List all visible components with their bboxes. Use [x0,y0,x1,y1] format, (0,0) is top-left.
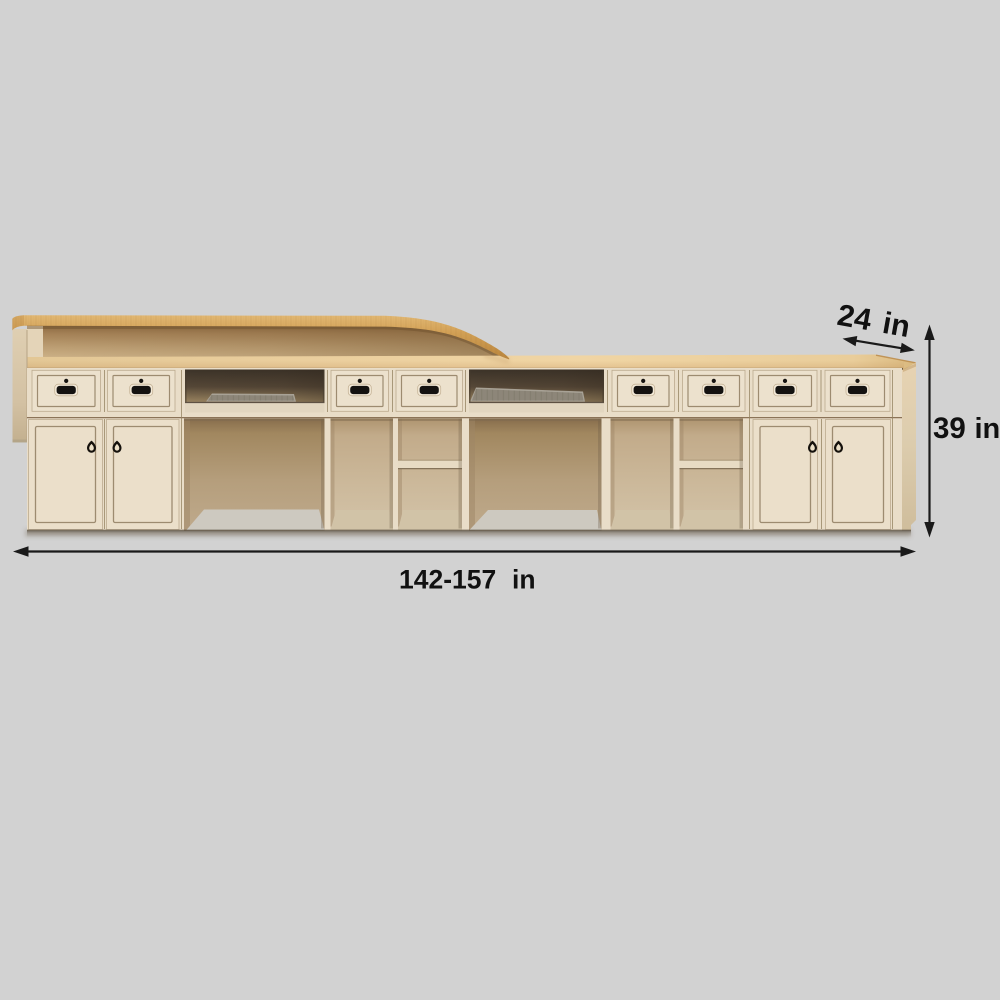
svg-text:in: in [975,413,1000,445]
svg-text:39: 39 [933,412,966,445]
svg-text:24: 24 [835,298,874,337]
svg-text:142-157: 142-157 [399,565,496,595]
svg-text:in: in [512,565,536,595]
